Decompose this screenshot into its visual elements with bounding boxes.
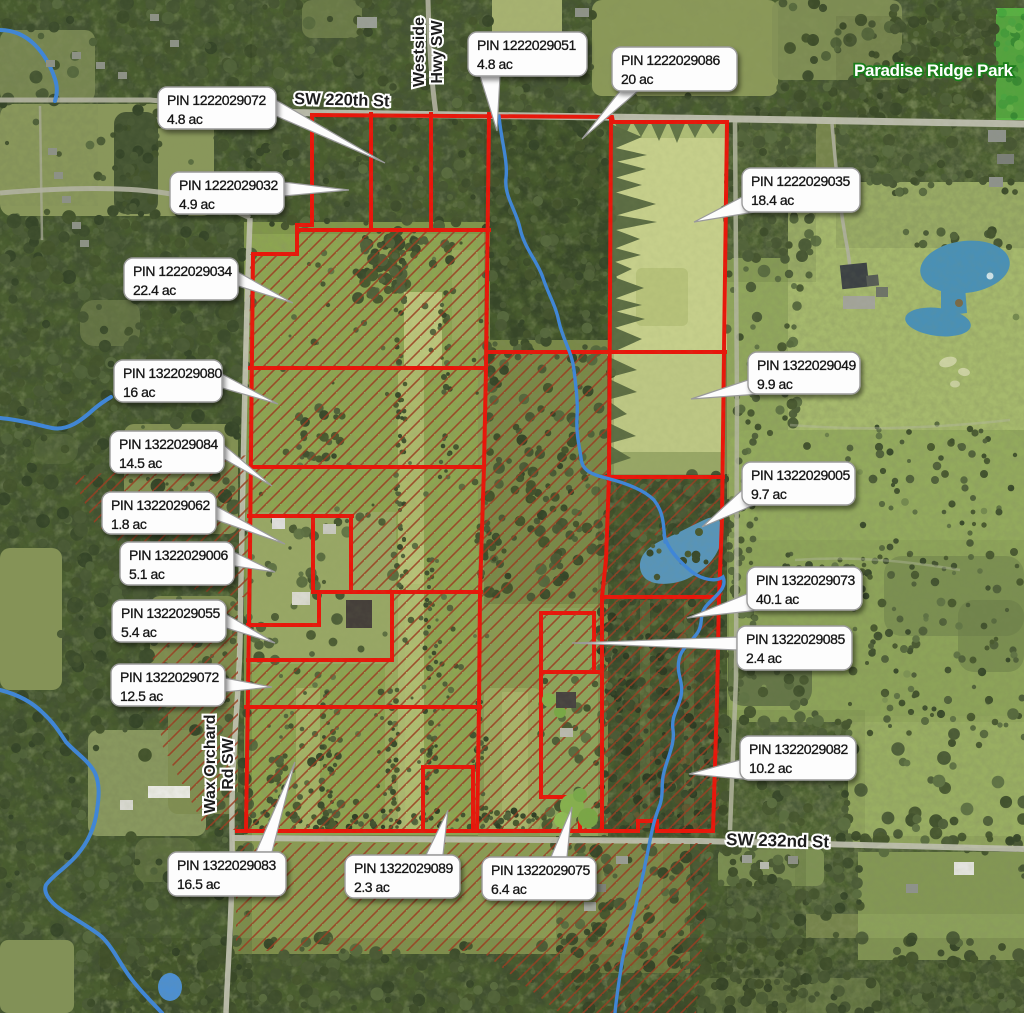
svg-text:4.8 ac: 4.8 ac xyxy=(477,56,513,72)
svg-text:PIN 1222029072: PIN 1222029072 xyxy=(167,92,266,108)
svg-text:SW 232nd St: SW 232nd St xyxy=(726,830,830,852)
svg-text:2.3 ac: 2.3 ac xyxy=(354,879,390,895)
svg-text:20 ac: 20 ac xyxy=(621,71,653,87)
svg-text:SW 220th St: SW 220th St xyxy=(294,90,390,111)
svg-text:18.4 ac: 18.4 ac xyxy=(751,192,794,208)
svg-text:12.5 ac: 12.5 ac xyxy=(120,688,163,704)
svg-text:Westside: Westside xyxy=(411,17,428,87)
svg-text:2.4 ac: 2.4 ac xyxy=(746,650,782,666)
svg-text:PIN 1222029051: PIN 1222029051 xyxy=(477,37,576,53)
svg-text:PIN 1322029006: PIN 1322029006 xyxy=(129,547,228,563)
svg-text:16.5 ac: 16.5 ac xyxy=(177,876,220,892)
svg-text:Hwy SW: Hwy SW xyxy=(429,20,446,84)
svg-text:Wax Orchard: Wax Orchard xyxy=(202,715,219,814)
svg-text:PIN 1322029073: PIN 1322029073 xyxy=(756,572,855,588)
svg-text:16 ac: 16 ac xyxy=(123,384,155,400)
svg-text:PIN 1222029032: PIN 1222029032 xyxy=(179,177,278,193)
svg-text:PIN 1322029049: PIN 1322029049 xyxy=(757,357,856,373)
svg-text:PIN 1322029072: PIN 1322029072 xyxy=(120,669,219,685)
svg-text:5.1 ac: 5.1 ac xyxy=(129,566,165,582)
svg-text:PIN 1322029062: PIN 1322029062 xyxy=(111,497,210,513)
svg-text:PIN 1322029075: PIN 1322029075 xyxy=(491,862,590,878)
svg-text:PIN 1322029005: PIN 1322029005 xyxy=(751,467,850,483)
svg-text:6.4 ac: 6.4 ac xyxy=(491,881,527,897)
svg-text:4.9 ac: 4.9 ac xyxy=(179,196,215,212)
svg-text:PIN 1322029084: PIN 1322029084 xyxy=(119,436,218,452)
svg-text:9.7 ac: 9.7 ac xyxy=(751,486,787,502)
svg-text:10.2 ac: 10.2 ac xyxy=(749,760,792,776)
svg-text:Rd SW: Rd SW xyxy=(220,737,237,789)
svg-text:PIN 1222029034: PIN 1222029034 xyxy=(133,263,232,279)
svg-text:PIN 1322029089: PIN 1322029089 xyxy=(354,860,453,876)
svg-text:5.4 ac: 5.4 ac xyxy=(121,624,157,640)
svg-text:40.1 ac: 40.1 ac xyxy=(756,591,799,607)
svg-text:4.8 ac: 4.8 ac xyxy=(167,111,203,127)
svg-text:PIN 1322029055: PIN 1322029055 xyxy=(121,605,220,621)
svg-text:22.4 ac: 22.4 ac xyxy=(133,282,176,298)
svg-text:9.9 ac: 9.9 ac xyxy=(757,376,793,392)
svg-text:PIN 1322029082: PIN 1322029082 xyxy=(749,741,848,757)
svg-text:PIN 1322029080: PIN 1322029080 xyxy=(123,365,222,381)
svg-text:1.8 ac: 1.8 ac xyxy=(111,516,147,532)
svg-text:Paradise Ridge Park: Paradise Ridge Park xyxy=(854,61,1014,80)
svg-text:PIN 1222029086: PIN 1222029086 xyxy=(621,52,720,68)
svg-text:PIN 1322029085: PIN 1322029085 xyxy=(746,631,845,647)
svg-text:PIN 1322029083: PIN 1322029083 xyxy=(177,857,276,873)
svg-text:14.5 ac: 14.5 ac xyxy=(119,455,162,471)
svg-text:PIN 1222029035: PIN 1222029035 xyxy=(751,173,850,189)
